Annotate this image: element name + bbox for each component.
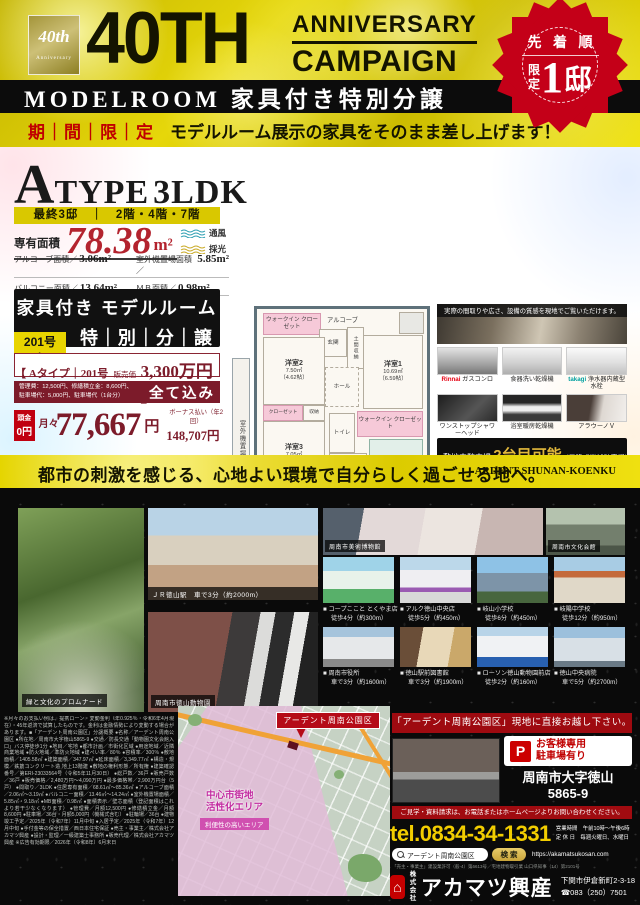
title-40th: 40TH [86,0,249,77]
brand-takagi: takagi [568,376,586,383]
equipment-caption: 食器洗い乾燥機 [502,376,563,383]
monthly-label: 月々 [39,420,52,431]
walk-in-closet-1: ウォークイン クローゼット [263,313,321,335]
fees-detail: 管理費：12,500円、修繕積立金：8,600円、 駐車場代：5,000円、駐車… [19,383,132,400]
site-photo [392,738,500,803]
map-green-spot [334,770,344,779]
facility-item: ■ コープここと とくやま店 徒歩4分（約300m） [323,605,394,624]
facility-name: コープここと とくやま店 [328,606,397,613]
ventilation-row: 通風 [180,227,232,239]
equipment-dishwasher: 食器洗い乾燥機 [502,347,563,391]
down-payment-label: 頭金 [17,413,31,423]
search-button-graphic: 検 索 [492,848,526,861]
header-gold-banner: 40th Anniversary 40TH ANNIVERSARY CAMPAI… [0,0,640,147]
facility-photo [477,627,548,667]
spec-label: 室外機置場面積／ [136,254,195,276]
first-come-badge: 先 着 順 限 定 1 邸 [492,3,628,127]
facility-name-line: ■ コープここと とくやま店 [323,605,394,614]
facility-item: ■ アルク徳山中央店 徒歩5分（約450m） [400,605,471,624]
equipment-name: 食器洗い乾燥機 [510,376,553,383]
zoo-photo: 周南市徳山動物園 [148,612,318,712]
site-address-line1: 周南市大字徳山 [522,770,613,785]
equipment-name: 浴室暖房乾燥機 [510,423,553,430]
property-outline-fineprint: ※月々のお支払い例は、提携ローン・変動金利（年0.925％・令和6年4月現在）・… [4,716,174,902]
equipment-shower-head: ワンストップシャワーヘッド [437,394,498,438]
visit-heading-band: 「アーデント周南公園区」現地に直接お越し下さい。 [392,713,632,733]
search-keyword: アーデント周南公園区 [407,850,475,860]
facility-photo [400,627,471,667]
bullet-icon: ■ [323,670,327,677]
bullet-icon: ■ [477,670,481,677]
web-search-row: アーデント周南公園区 検 索 https://akamatsukosan.com [392,848,632,861]
equipment-caption: ワンストップシャワーヘッド [437,423,498,438]
culture-hall-photo: 周南市文化会館 [546,508,625,555]
equipment-caption: 浴室暖房乾燥機 [502,423,563,430]
shower-head-image [437,394,498,422]
spec-alcove: アルコーブ面積／3.06m² [14,253,136,278]
dishwasher-image [502,347,563,375]
magnifier-icon [397,851,404,858]
phone-row: tel.0834-34-1331 営業時間 午前10時～午後6時 定 休 日 毎… [390,821,632,847]
modelroom-band-text: MODELROOM 家具付き特別分譲 [24,80,447,114]
company-logo: ⌂ [390,875,405,899]
homepage-url: https://akamatsukosan.com [532,851,609,858]
parking-p-icon: P [510,741,531,762]
company-address: 下関市伊倉新町2-3-18 [561,876,635,885]
spec-label: アルコーブ面積／ [14,254,77,265]
badge-unit-count: 1 [541,59,563,96]
storage: 収納 [303,405,325,421]
equipment-caption: Rinnai ガスコンロ [437,376,498,383]
kabu-line2: 会社 [410,887,417,902]
logo-40th-text: 40th [29,27,79,47]
type-ldk: 3LDK [153,174,248,211]
bedroom2-tatami: （4.62帖） [280,375,308,382]
city-copy-en: ARDENT SHUNAN-KOENKU [475,466,616,477]
zone-label-line1: 中心市街地 [206,790,254,801]
down-payment-box: 頭金 0円 [14,410,35,441]
facility-access: 徒歩6分（約450m） [477,614,548,623]
city-copy-band: 都市の刺激を感じる、心地よい環境で自分らしく過ごせる地へ。 ARDENT SHU… [0,455,640,488]
facility-name-line: ■ 岐陽中学校 [554,605,625,614]
map-green-spot [188,714,202,726]
showroom-photo: 実際の間取りや広さ、設備の質感を現地でご覧いただけます。 [437,304,627,344]
company-phone: ☎083（250）7501 [561,888,627,897]
bullet-icon: ■ [554,670,558,677]
doma-label: 土間収納 [352,336,358,360]
bonus-value: 148,707円 [166,425,226,444]
map-zone-label: 中心市街地 活性化エリア [206,790,263,815]
search-box-graphic: アーデント周南公園区 [392,848,488,861]
customer-parking-box: P お客様専用 駐車場有り [504,736,632,766]
all-included-label: 全て込み [149,382,215,403]
bullet-icon: ■ [477,606,481,613]
spec-outdoor-unit: 室外機置場面積／5.85m² [136,253,229,278]
badge-gentei-label: 限 定 [528,64,540,92]
logo-anniversary-text: Anniversary [29,56,79,61]
museum-photo: 周南市美術博物館 [323,508,543,555]
bonus-label: ボーナス払い（年2回） [166,407,226,425]
map-label-pointer [296,728,306,743]
facility-name: 岐陽中学校 [559,606,590,613]
company-contact: 下関市伊倉新町2-3-18 ☎083（250）7501 [561,875,635,901]
company-kabushiki-label: 株式 会社 [410,871,418,904]
badge-text: 先 着 順 限 定 1 邸 [512,17,608,113]
spec-value: 3.06m² [79,253,111,265]
facility-name-line: ■ アルク徳山中央店 [400,605,471,614]
main-plan-section: ATYPE 3LDK 最終3邸 ｜ 2階・4階・7階 専有面積 78.38 m²… [0,147,640,455]
badge-gentei-char1: 限 [528,64,540,78]
map-property-label: アーデント周南公園区 [276,712,380,729]
zone-label-line2: 活性化エリア [206,802,263,813]
type-word: TYPE [54,174,149,211]
all-included-box: 管理費：12,500円、修繕積立金：8,600円、 駐車場代：5,000円、駐車… [14,381,220,403]
contact-cta-band: ご見学・資料請求は、お電話またはホームページよりお問い合わせください。 [392,806,632,819]
promenade-photo: 緑と文化のプロムナード [18,508,144,712]
facility-access: 車で5分（約2700m） [554,678,625,687]
facility-name-line: ■ 徳山中央病院 [554,669,625,678]
furnished-modelroom-title: 家具付き モデルルーム [14,295,220,320]
facility-item: ■ ローソン徳山動物園前店 徒歩2分（約160m） [477,669,548,688]
city-copy-jp: 都市の刺激を感じる、心地よい環境で自分らしく過ごせる地へ。 [38,461,546,486]
equipment-caption: takagi 浄水器内蔵型水栓 [566,376,627,391]
wic2-label: ウォークイン クローゼット [358,417,422,431]
spec-value: 5.85m² [197,253,229,265]
bedroom-2: 洋室2 7.50㎡ （4.62帖） [263,337,325,405]
anniversary-text: ANNIVERSARY [292,11,477,44]
facility-name-line: ■ 岐山小学校 [477,605,548,614]
entrance-label: 玄関 [327,340,338,347]
facility-item: ■ 徳山中央病院 車で5分（約2700m） [554,669,625,688]
facility-name: ローソン徳山動物園前店 [482,670,550,677]
facility-photo [400,557,471,603]
furnished-modelroom-box: 家具付き モデルルーム 201号室 特｜別｜分｜譲｜中 [14,289,220,347]
equipment-name: アラウーノＶ [578,423,615,430]
hall: ホール [325,367,359,407]
price-box: 【 Aタイプ｜201号室｜ 販売価格 3,300万円 】 [14,353,220,377]
walk-in-closet-2: ウォークイン クローゼット [357,411,423,437]
gas-stove-image [437,347,498,375]
hours-line1: 営業時間 午前10時～午後6時 [556,826,630,832]
license-fineprint: 「売主・事業主」建設業許可（般-4）第6613号／宅地建物取引業 山口県知事（1… [392,864,632,870]
alcove-label: アルコーブ [327,315,358,324]
closet: クローゼット [263,405,303,421]
closet-label: クローゼット [269,410,298,416]
toilet-label: トイレ [334,430,351,437]
customer-parking-text: お客様専用 駐車場有り [536,739,586,763]
faucet-image [566,347,627,375]
equipment-grid: Rinnai ガスコンロ 食器洗い乾燥機 takagi 浄水器内蔵型水栓 ワンス… [437,347,627,438]
bonus-payment: ボーナス払い（年2回） 148,707円 [166,407,226,444]
anniversary-logo: 40th Anniversary [28,15,80,75]
map-park-area [348,854,382,882]
fees-line1: 管理費：12,500円、修繕積立金：8,600円、 [19,384,132,390]
monthly-unit: 円 [144,415,159,436]
equipment-name: ワンストップシャワーヘッド [440,423,496,437]
facility-access: 徒歩5分（約450m） [400,614,471,623]
station-photo: ＪＲ徳山駅 車で3分（約2000m） [148,508,318,600]
facility-item: ■ 周南市役所 車で3分（約1600m） [323,669,394,688]
facility-name-line: ■ ローソン徳山動物園前店 [477,669,548,678]
site-address: 周南市大字徳山 5865-9 [504,770,632,803]
access-map: アーデント周南公園区 中心市街地 活性化エリア 利便性の高いエリア [178,706,390,896]
facility-photo [554,627,625,667]
outdoor-unit-label: 室外機置場 [236,420,246,458]
facility-name-line: ■ 周南市役所 [323,669,394,678]
bullet-icon: ■ [400,606,404,613]
bullet-icon: ■ [554,606,558,613]
badge-gentei-char2: 定 [528,78,540,92]
monthly-value: 77,667 [56,409,141,442]
ventilation-label: 通風 [209,227,226,239]
facility-name: 岐山小学校 [482,606,513,613]
promenade-caption: 緑と文化のプロムナード [22,694,107,707]
bath-dryer-image [502,394,563,422]
company-row: ⌂ 株式 会社 アカマツ興産 下関市伊倉新町2-3-18 ☎083（250）75… [390,871,635,904]
facility-access: 徒歩4分（約300m） [323,614,394,623]
toilet-image [566,394,627,422]
facility-access: 車で3分（約1900m） [400,678,471,687]
down-payment-value: 0円 [17,423,33,438]
facility-photo [477,557,548,603]
site-address-line2: 5865-9 [548,786,588,801]
station-caption: ＪＲ徳山駅 車で3分（約2000m） [148,587,318,600]
kabu-line1: 株式 [410,871,417,886]
equipment-bath-dryer: 浴室暖房乾燥機 [502,394,563,438]
facility-name: 徳山中央病院 [559,670,596,677]
culture-hall-caption: 周南市文化会館 [548,540,600,552]
facility-item: ■ 岐山小学校 徒歩6分（約450m） [477,605,548,624]
equipment-toilet: アラウーノＶ [566,394,627,438]
meter-box [399,312,424,334]
monthly-payment-row: 頭金 0円 月々 77,667 円 ボーナス払い（年2回） 148,707円 [14,407,226,443]
hall-label: ホール [334,384,351,391]
brand-rinnai: Rinnai [442,376,461,383]
facility-access: 徒歩2分（約160m） [477,678,548,687]
equipment-name: 浄水器内蔵型水栓 [586,376,625,390]
campaign-text: CAMPAIGN [292,45,477,79]
company-name: アカマツ興産 [421,872,553,902]
doma-storage: 土間収納 [347,327,364,369]
badge-limited-one: 限 定 1 邸 [528,58,592,98]
showroom-caption: 実際の間取りや広さ、設備の質感を現地でご覧いただけます。 [437,304,627,317]
facility-name: 周南市役所 [328,670,359,677]
hours-line2: 定 休 日 毎週火曜日、水曜日 [556,835,629,841]
anniversary-campaign-block: ANNIVERSARY CAMPAIGN [292,11,477,79]
bedroom1-tatami: （6.59帖） [379,376,407,383]
equipment-name: ガスコンロ [460,376,493,383]
exclusive-area-label: 専有面積 [14,235,60,251]
wind-wave-icon [180,229,206,238]
facility-photo [323,557,394,603]
facility-access: 徒歩12分（約950m） [554,614,625,623]
facility-name-line: ■ 徳山駅前図書館 [400,669,471,678]
facility-item: ■ 徳山駅前図書館 車で3分（約1900m） [400,669,471,688]
toilet: トイレ [329,413,355,453]
facility-photo [554,557,625,603]
badge-unit-suffix: 邸 [564,58,592,98]
wic1-label: ウォークイン クローゼット [264,317,320,331]
phone-number: tel.0834-34-1331 [390,821,551,847]
facility-name: アルク徳山中央店 [405,606,454,613]
bullet-icon: ■ [400,670,404,677]
storage-label: 収納 [309,410,319,416]
facility-item: ■ 岐陽中学校 徒歩12分（約950m） [554,605,625,624]
flyer-page: 40th Anniversary 40TH ANNIVERSARY CAMPAI… [0,0,640,905]
facility-photo [323,627,394,667]
bullet-icon: ■ [323,606,327,613]
bedroom-1: 洋室1 10.69㎡ （6.59帖） [363,335,423,409]
museum-caption: 周南市美術博物館 [325,540,385,552]
customer-parking-line1: お客様専用 [536,739,586,750]
equipment-caption: アラウーノＶ [566,423,627,430]
customer-parking-line2: 駐車場有り [536,751,586,762]
map-convenience-chip: 利便性の高いエリア [200,818,269,830]
limited-period-label: 期｜間｜限｜定 [28,118,154,143]
fees-line2: 駐車場代：5,000円、駐車場代（1台分） [19,393,124,399]
facility-name: 徳山駅前図書館 [405,670,448,677]
equipment-water-faucet: takagi 浄水器内蔵型水栓 [566,347,627,391]
equipment-gas-stove: Rinnai ガスコンロ [437,347,498,391]
business-hours: 営業時間 午前10時～午後6時 定 休 日 毎週火曜日、水曜日 [556,825,630,843]
facility-access: 車で3分（約1600m） [323,678,394,687]
